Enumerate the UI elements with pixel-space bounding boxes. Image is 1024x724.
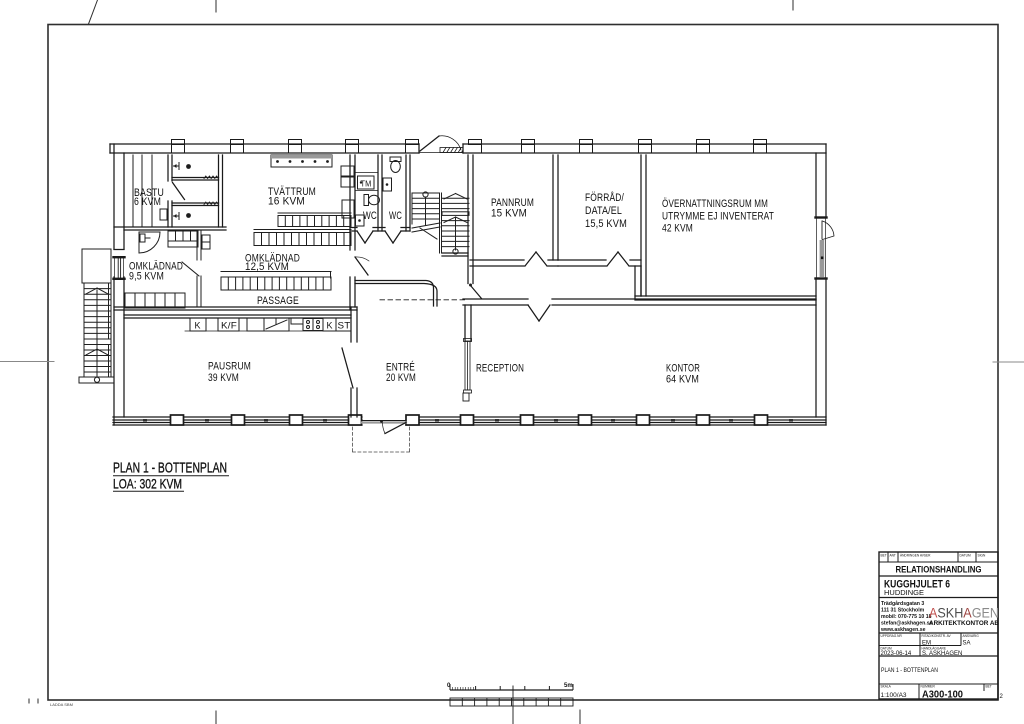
- svg-text:SKALA: SKALA: [881, 685, 892, 689]
- svg-text:www.askhagen.se: www.askhagen.se: [880, 627, 926, 633]
- svg-text:WC: WC: [363, 210, 377, 222]
- svg-text:HANDLÄGGARE: HANDLÄGGARE: [922, 647, 946, 651]
- svg-text:15,5 KVM: 15,5 KVM: [585, 218, 627, 230]
- svg-text:9,5 KVM: 9,5 KVM: [129, 271, 164, 283]
- svg-text:ST: ST: [338, 321, 351, 331]
- svg-text:EM: EM: [922, 641, 931, 647]
- svg-text:SA: SA: [963, 641, 971, 647]
- svg-text:ÖVERNATTNINGSRUM MM: ÖVERNATTNINGSRUM MM: [662, 198, 768, 210]
- svg-text:PAUSRUM: PAUSRUM: [208, 361, 251, 373]
- svg-text:HUDDINGE: HUDDINGE: [884, 588, 924, 597]
- svg-text:42 KVM: 42 KVM: [662, 223, 693, 235]
- svg-text:16 KVM: 16 KVM: [268, 196, 305, 208]
- svg-text:FÖRRÅD/: FÖRRÅD/: [585, 191, 624, 204]
- svg-text:ANT: ANT: [890, 554, 896, 558]
- svg-text:39 KVM: 39 KVM: [208, 372, 239, 384]
- svg-text:SIGN: SIGN: [978, 554, 986, 558]
- svg-text:UTRYMME EJ INVENTERAT: UTRYMME EJ INVENTERAT: [662, 211, 774, 223]
- svg-text:PLAN 1 - BOTTENPLAN: PLAN 1 - BOTTENPLAN: [881, 667, 938, 674]
- svg-text:111 31 Stockholm: 111 31 Stockholm: [881, 608, 925, 614]
- svg-text:A300-100: A300-100: [922, 689, 963, 701]
- svg-text:K/F: K/F: [221, 321, 237, 331]
- svg-text:2023-06-14: 2023-06-14: [881, 651, 912, 657]
- svg-text:DATA/EL: DATA/EL: [585, 205, 622, 217]
- svg-text:Trädgårdsgatan 3: Trädgårdsgatan 3: [881, 600, 924, 607]
- svg-text:ANSVARIG: ANSVARIG: [963, 634, 980, 638]
- svg-text:64 KVM: 64 KVM: [666, 374, 699, 386]
- svg-text:12,5 KVM: 12,5 KVM: [245, 261, 289, 273]
- svg-text:PLAN 1 - BOTTENPLAN: PLAN 1 - BOTTENPLAN: [113, 461, 227, 477]
- svg-text:1:100/A3: 1:100/A3: [881, 692, 907, 699]
- svg-text:20 KVM: 20 KVM: [386, 372, 416, 384]
- svg-text:stefan@askhagen.se: stefan@askhagen.se: [881, 621, 933, 627]
- svg-text:BET: BET: [881, 554, 887, 558]
- svg-text:RITAD/KONSTR. AV: RITAD/KONSTR. AV: [922, 634, 952, 638]
- svg-text:RECEPTION: RECEPTION: [476, 363, 524, 375]
- svg-text:DATUM: DATUM: [960, 554, 971, 558]
- svg-text:ARKITEKTKONTOR AB: ARKITEKTKONTOR AB: [929, 620, 999, 627]
- svg-text:mobil: 070-775 10 18: mobil: 070-775 10 18: [881, 614, 932, 620]
- svg-text:BET: BET: [986, 685, 992, 689]
- svg-text:15 KVM: 15 KVM: [491, 208, 527, 220]
- svg-text:DATUM: DATUM: [881, 647, 892, 651]
- svg-text:LADDA SBM: LADDA SBM: [50, 702, 73, 707]
- svg-text:PASSAGE: PASSAGE: [257, 295, 299, 307]
- svg-text:WC: WC: [389, 210, 402, 222]
- svg-text:S. ASKHAGEN: S. ASKHAGEN: [922, 651, 962, 657]
- svg-text:6 KVM: 6 KVM: [134, 196, 161, 208]
- svg-text:ASKHAGEN: ASKHAGEN: [929, 606, 999, 621]
- svg-text:UPPDRAG.NR: UPPDRAG.NR: [881, 634, 903, 638]
- svg-text:K: K: [195, 321, 201, 331]
- svg-text:LOA: 302 KVM: LOA: 302 KVM: [113, 477, 182, 492]
- svg-text:RELATIONSHANDLING: RELATIONSHANDLING: [896, 565, 982, 576]
- svg-text:5m: 5m: [564, 683, 573, 689]
- svg-text:ÄNDRINGEN AVSER: ÄNDRINGEN AVSER: [900, 554, 931, 558]
- svg-text:K: K: [327, 321, 333, 331]
- svg-text:TM: TM: [361, 180, 372, 189]
